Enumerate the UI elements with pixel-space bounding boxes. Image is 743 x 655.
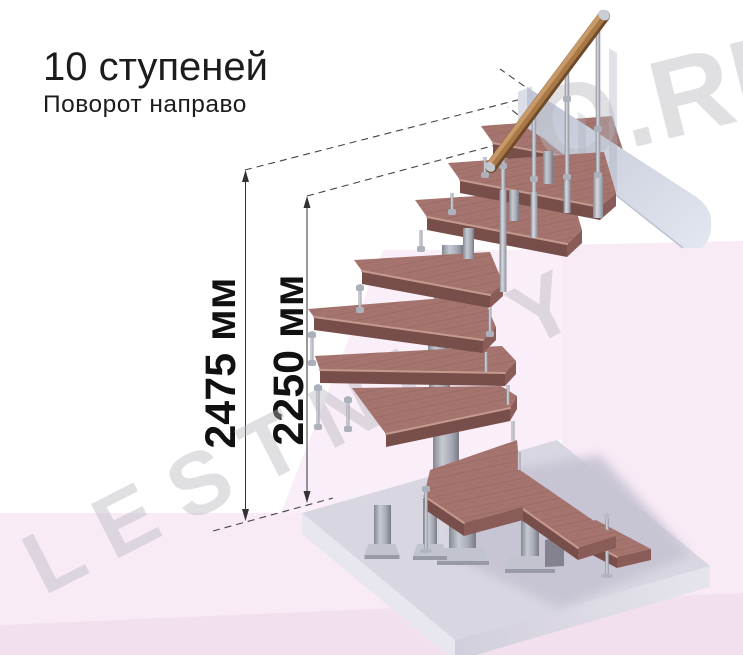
svg-text:Поворот направо: Поворот направо <box>43 91 247 118</box>
svg-text:10 ступеней: 10 ступеней <box>43 45 268 89</box>
